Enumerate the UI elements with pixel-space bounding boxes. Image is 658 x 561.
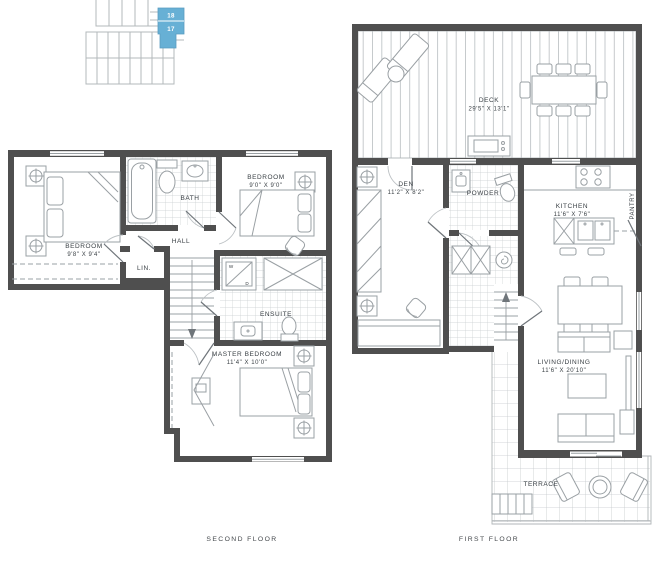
terrace-steps [492,494,532,514]
second-floor-plan: BEDROOM 9'8" X 9'4" BATH [8,150,332,543]
floor-plan-sheet: 18 17 [0,0,658,561]
caption-second-floor: SECOND FLOOR [206,536,277,543]
sofa-icon [558,414,614,442]
room-dims-bedroom2: 9'0" X 9'0" [249,183,282,189]
room-label-kitchen: KITCHEN [556,203,588,210]
coffee-table-icon [568,374,606,398]
kitchen-island [554,218,636,255]
stool-icon [560,248,576,255]
room-label-ensuite: ENSUITE [260,311,292,318]
door-leaf [428,222,446,238]
room-label-pantry: PANTRY [630,192,636,219]
room-dims-bedroom1: 9'8" X 9'4" [67,252,100,258]
room-label-den: DEN [398,181,413,188]
room-label-deck: DECK [479,97,499,104]
column-icon [496,252,512,268]
room-label-master: MASTER BEDROOM [212,351,282,358]
key-plan: 18 17 [86,0,184,84]
room-dims-deck: 29'5" X 13'1" [468,107,509,113]
room-label-powder: POWDER [467,190,500,197]
room-label-bath: BATH [180,195,199,202]
armchair-icon [614,331,632,349]
desk-icon [358,320,440,346]
sink-icon [452,170,470,192]
stove-icon [576,166,610,188]
room-dims-kitchen: 11'6" X 7'6" [554,212,591,218]
walkway-floor [492,352,518,456]
stairs-down [170,258,214,339]
door-leaf [138,236,154,249]
dining-table-icon [558,277,622,333]
linen-closet: LIN. [137,236,154,272]
living-dining: LIVING/DINING 11'6" X 20'10" [537,277,634,442]
stairs-up [494,284,518,346]
room-label-bedroom1: BEDROOM [65,243,102,250]
bedroom1: BEDROOM 9'8" X 9'4" [12,166,123,279]
loveseat-icon [558,332,610,352]
nightstand-lamp-icon [26,236,46,256]
stool-icon [588,248,604,255]
ceiling-lamp-icon [357,296,377,316]
caption-first-floor: FIRST FLOOR [459,536,519,543]
closet-dashed-lines [12,264,118,279]
key-plan-unit-17: 17 [167,26,175,33]
bedroom2: BEDROOM 9'0" X 9'0" [219,172,315,257]
room-label-terrace: TERRACE [524,481,559,488]
key-plan-unit-18: 18 [167,13,175,20]
room-label-living-dining: LIVING/DINING [537,359,590,366]
room-dims-master: 11'4" X 10'0" [227,360,268,366]
master-bedroom: MASTER BEDROOM 11'4" X 10'0" [172,343,314,438]
side-table-icon [388,66,404,82]
nightstand-lamp-icon [295,172,315,192]
door-leaf [521,311,542,326]
shower-icon: W D [222,258,256,290]
door-leaf [219,212,236,228]
sink-icon [182,161,208,181]
nightstand-lamp-icon [294,346,314,366]
patio-table-icon [589,476,611,498]
room-label-bedroom2: BEDROOM [247,174,284,181]
first-floor-plan: DECK 29'5" X 13'1" DEN 11'2" [352,24,651,543]
room-label-linen: LIN. [137,265,151,272]
den: DEN 11'2" X 8'2" [357,166,446,346]
hall: HALL [170,238,214,339]
room-dims-den: 11'2" X 8'2" [388,190,425,196]
room-dims-living-dining: 11'6" X 20'10" [542,368,587,374]
closet-x-icon [452,246,490,274]
grill-icon [468,136,510,156]
tv-icon [626,356,631,410]
room-label-hall: HALL [172,238,190,245]
kitchen: KITCHEN 11'6" X 7'6" PANTRY [524,166,641,255]
closet-x-icon [264,258,322,290]
floor-plan-drawing: 18 17 [0,0,658,561]
nightstand-lamp-icon [294,418,314,438]
ceiling-lamp-icon [357,167,377,187]
bookshelf-icon [357,190,381,292]
nightstand-lamp-icon [26,166,46,186]
stair-direction-arrow-icon [188,329,196,339]
washer-label: W [229,264,234,269]
toilet-icon [157,160,177,193]
sink-icon [234,322,262,340]
side-table-icon [620,410,634,434]
chair-icon [405,297,428,320]
